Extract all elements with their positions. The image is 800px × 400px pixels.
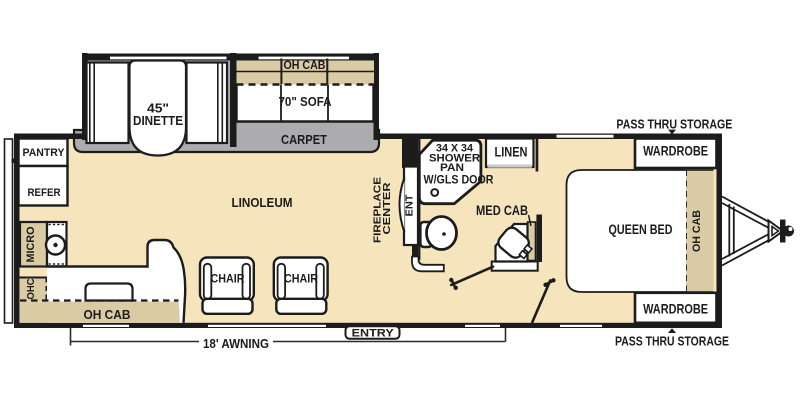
svg-text:DINETTE: DINETTE [133,113,183,128]
svg-text:PANTRY: PANTRY [23,147,66,159]
svg-text:OH CAB: OH CAB [691,210,703,252]
svg-text:OH CAB: OH CAB [284,58,326,72]
svg-text:CARPET: CARPET [281,132,327,147]
svg-text:PASS THRU STORAGE: PASS THRU STORAGE [615,334,729,349]
svg-text:LINOLEUM: LINOLEUM [232,195,293,210]
svg-text:OHC: OHC [25,278,37,299]
svg-text:MICRO: MICRO [25,226,37,262]
svg-text:OH CAB: OH CAB [84,307,131,322]
svg-text:W/GLS DOOR: W/GLS DOOR [424,173,494,187]
svg-text:ENT: ENT [404,194,416,217]
svg-text:REFER: REFER [28,187,61,199]
svg-text:PASS THRU STORAGE: PASS THRU STORAGE [616,117,732,132]
svg-text:18' AWNING: 18' AWNING [203,336,269,351]
svg-text:CHAIR: CHAIR [211,272,245,286]
svg-text:MED CAB: MED CAB [476,203,528,218]
svg-text:FIREPLACE: FIREPLACE [372,177,384,243]
svg-text:QUEEN BED: QUEEN BED [609,222,673,237]
svg-text:CHAIR: CHAIR [284,272,318,286]
svg-text:70" SOFA: 70" SOFA [279,94,333,109]
svg-text:ENTRY: ENTRY [352,328,395,340]
svg-text:WARDROBE: WARDROBE [643,301,708,317]
svg-text:WARDROBE: WARDROBE [643,143,708,159]
svg-text:LINEN: LINEN [495,145,528,160]
